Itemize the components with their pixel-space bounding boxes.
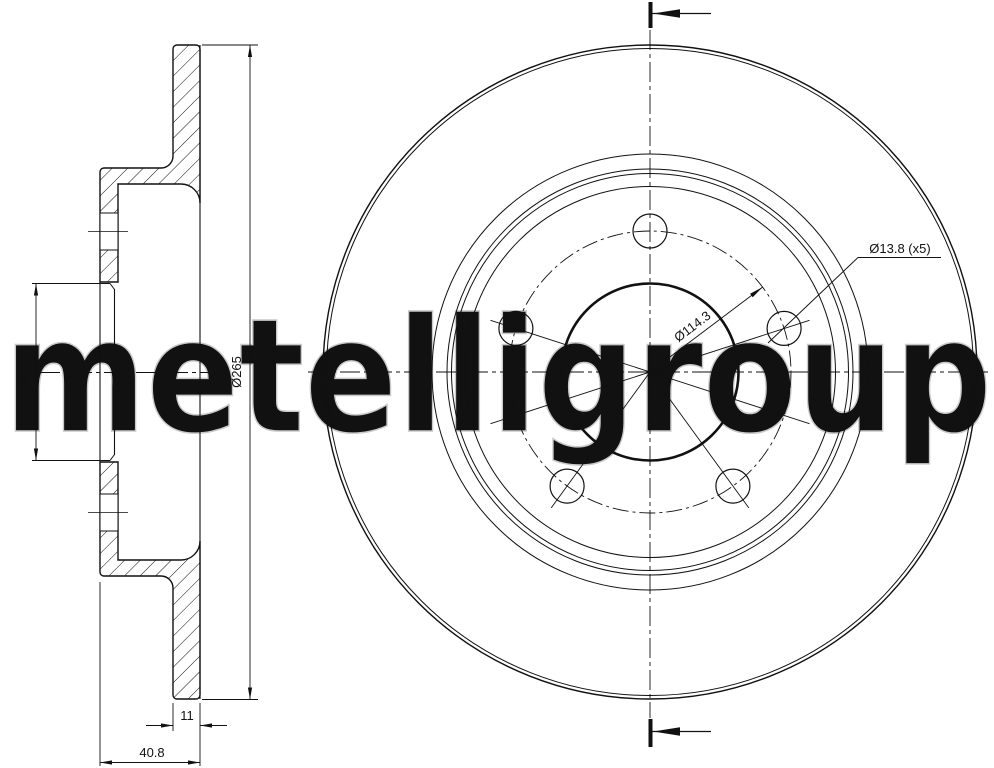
section-arrow-bottom: [653, 727, 680, 736]
dim-label-overall-width: 40.8: [139, 745, 164, 760]
drawing-canvas: metelligroup Ø72: [0, 0, 994, 768]
section-arrow-top: [653, 9, 680, 18]
dim-label-outer: Ø265: [229, 356, 244, 388]
dim-label-bolt-holes: Ø13.8 (x5): [869, 241, 930, 256]
dim-label-bore: Ø72: [14, 360, 29, 385]
technical-drawing: metelligroup Ø72: [0, 0, 994, 768]
dim-label-thickness: 11: [180, 708, 194, 723]
